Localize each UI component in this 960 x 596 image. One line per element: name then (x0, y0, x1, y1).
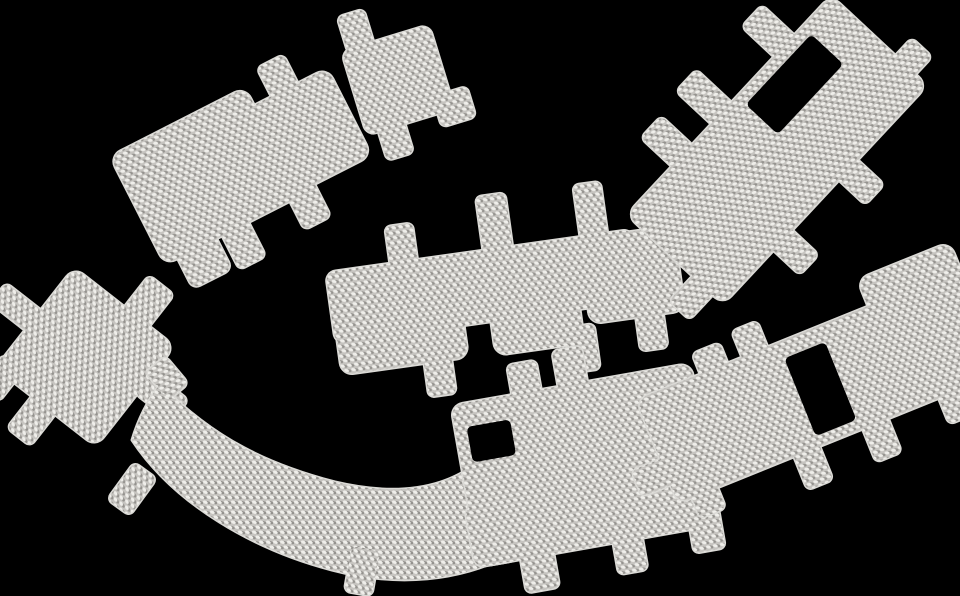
product-photo (0, 0, 960, 596)
photo-canvas (0, 0, 960, 596)
panel-bottom-center-slot-cutout (467, 419, 517, 462)
strip-middle-tab-hang-left (423, 352, 457, 397)
